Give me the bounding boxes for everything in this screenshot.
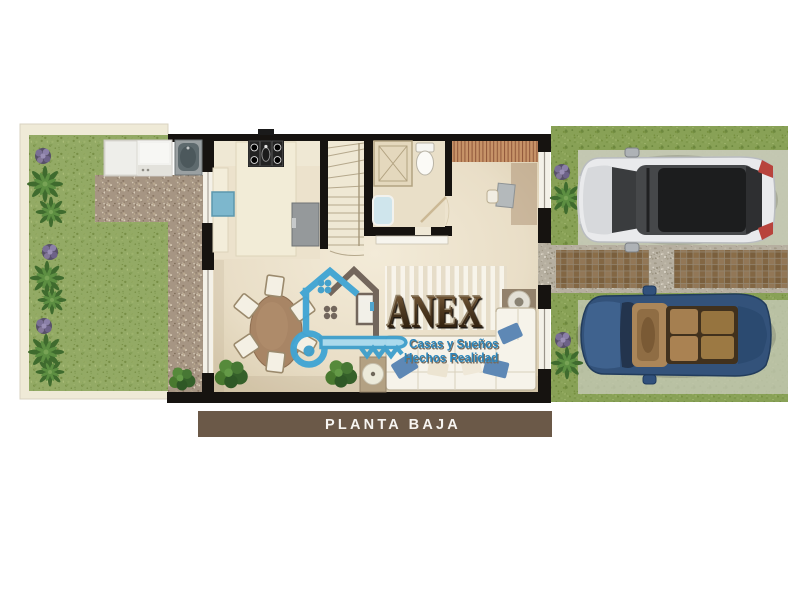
svg-text:Hechos Realidad: Hechos Realidad — [404, 350, 498, 365]
svg-text:PLANTA BAJA: PLANTA BAJA — [325, 417, 461, 433]
svg-text:Casas y Sueños: Casas y Sueños — [409, 336, 499, 351]
svg-text:ANEX: ANEX — [387, 286, 483, 338]
